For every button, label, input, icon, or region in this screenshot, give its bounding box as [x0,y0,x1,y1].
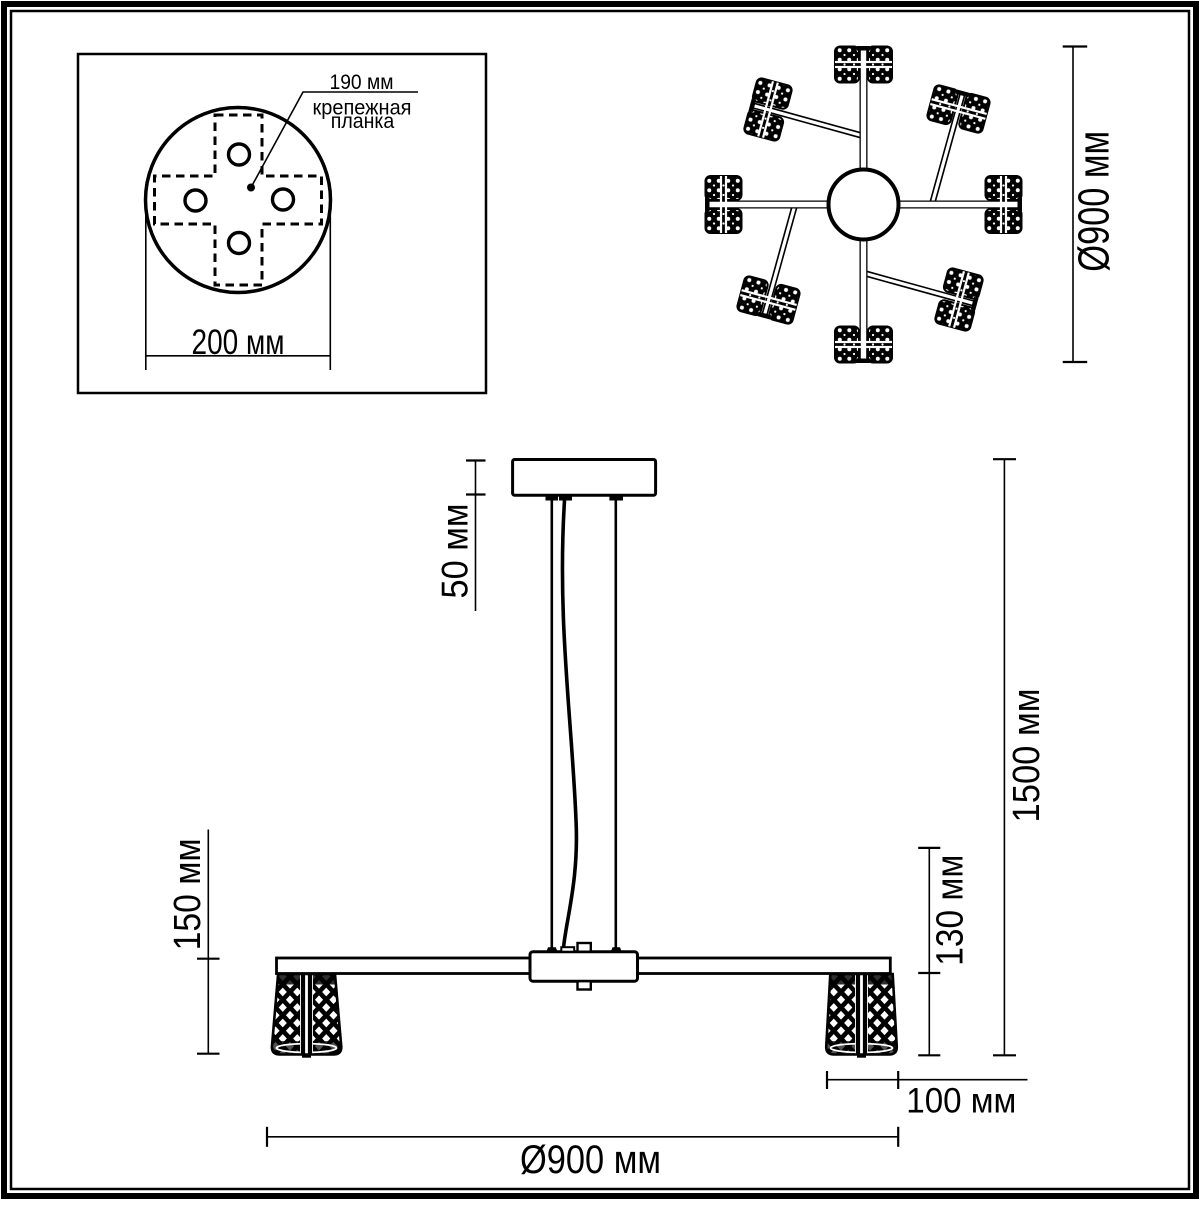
svg-text:50 мм: 50 мм [434,504,476,599]
svg-text:планка: планка [331,110,395,133]
svg-text:Ø900 мм: Ø900 мм [520,1138,661,1182]
svg-text:150 мм: 150 мм [167,838,209,950]
svg-text:100 мм: 100 мм [906,1081,1016,1121]
svg-text:1500 мм: 1500 мм [1006,689,1048,823]
svg-text:Ø900 мм: Ø900 мм [1069,131,1118,272]
svg-text:200 мм: 200 мм [192,323,285,362]
svg-text:190 мм: 190 мм [330,71,394,94]
svg-text:130 мм: 130 мм [930,855,972,966]
